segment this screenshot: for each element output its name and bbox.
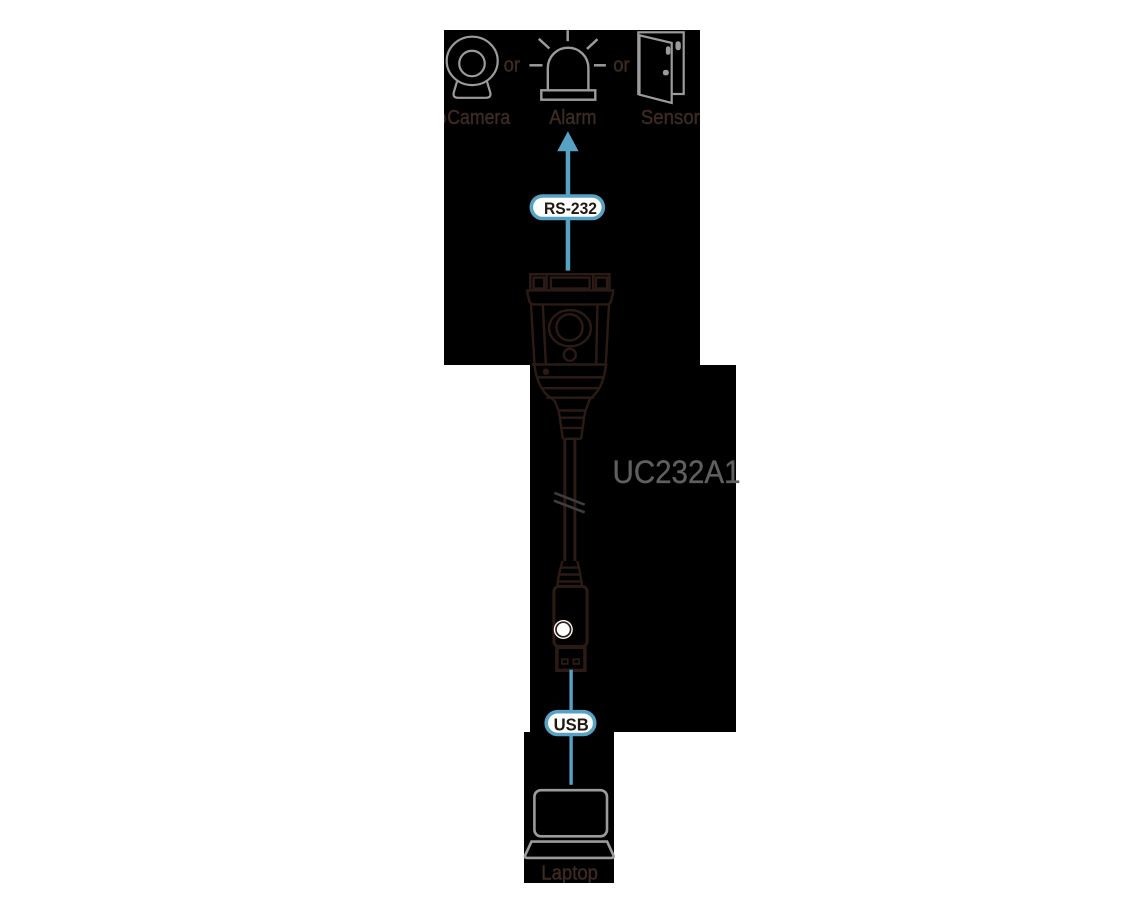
svg-text:Laptop: Laptop <box>541 863 598 885</box>
svg-text:RS-232: RS-232 <box>544 199 597 218</box>
svg-text:o: o <box>435 107 446 129</box>
svg-text:Alarm: Alarm <box>549 107 596 129</box>
svg-text:or: or <box>613 55 630 77</box>
svg-text:UC232A1: UC232A1 <box>613 454 741 490</box>
svg-text:USB: USB <box>554 715 589 735</box>
svg-text:Camera: Camera <box>447 107 511 129</box>
svg-text:Sensor: Sensor <box>641 107 700 129</box>
svg-text:or: or <box>504 55 521 77</box>
